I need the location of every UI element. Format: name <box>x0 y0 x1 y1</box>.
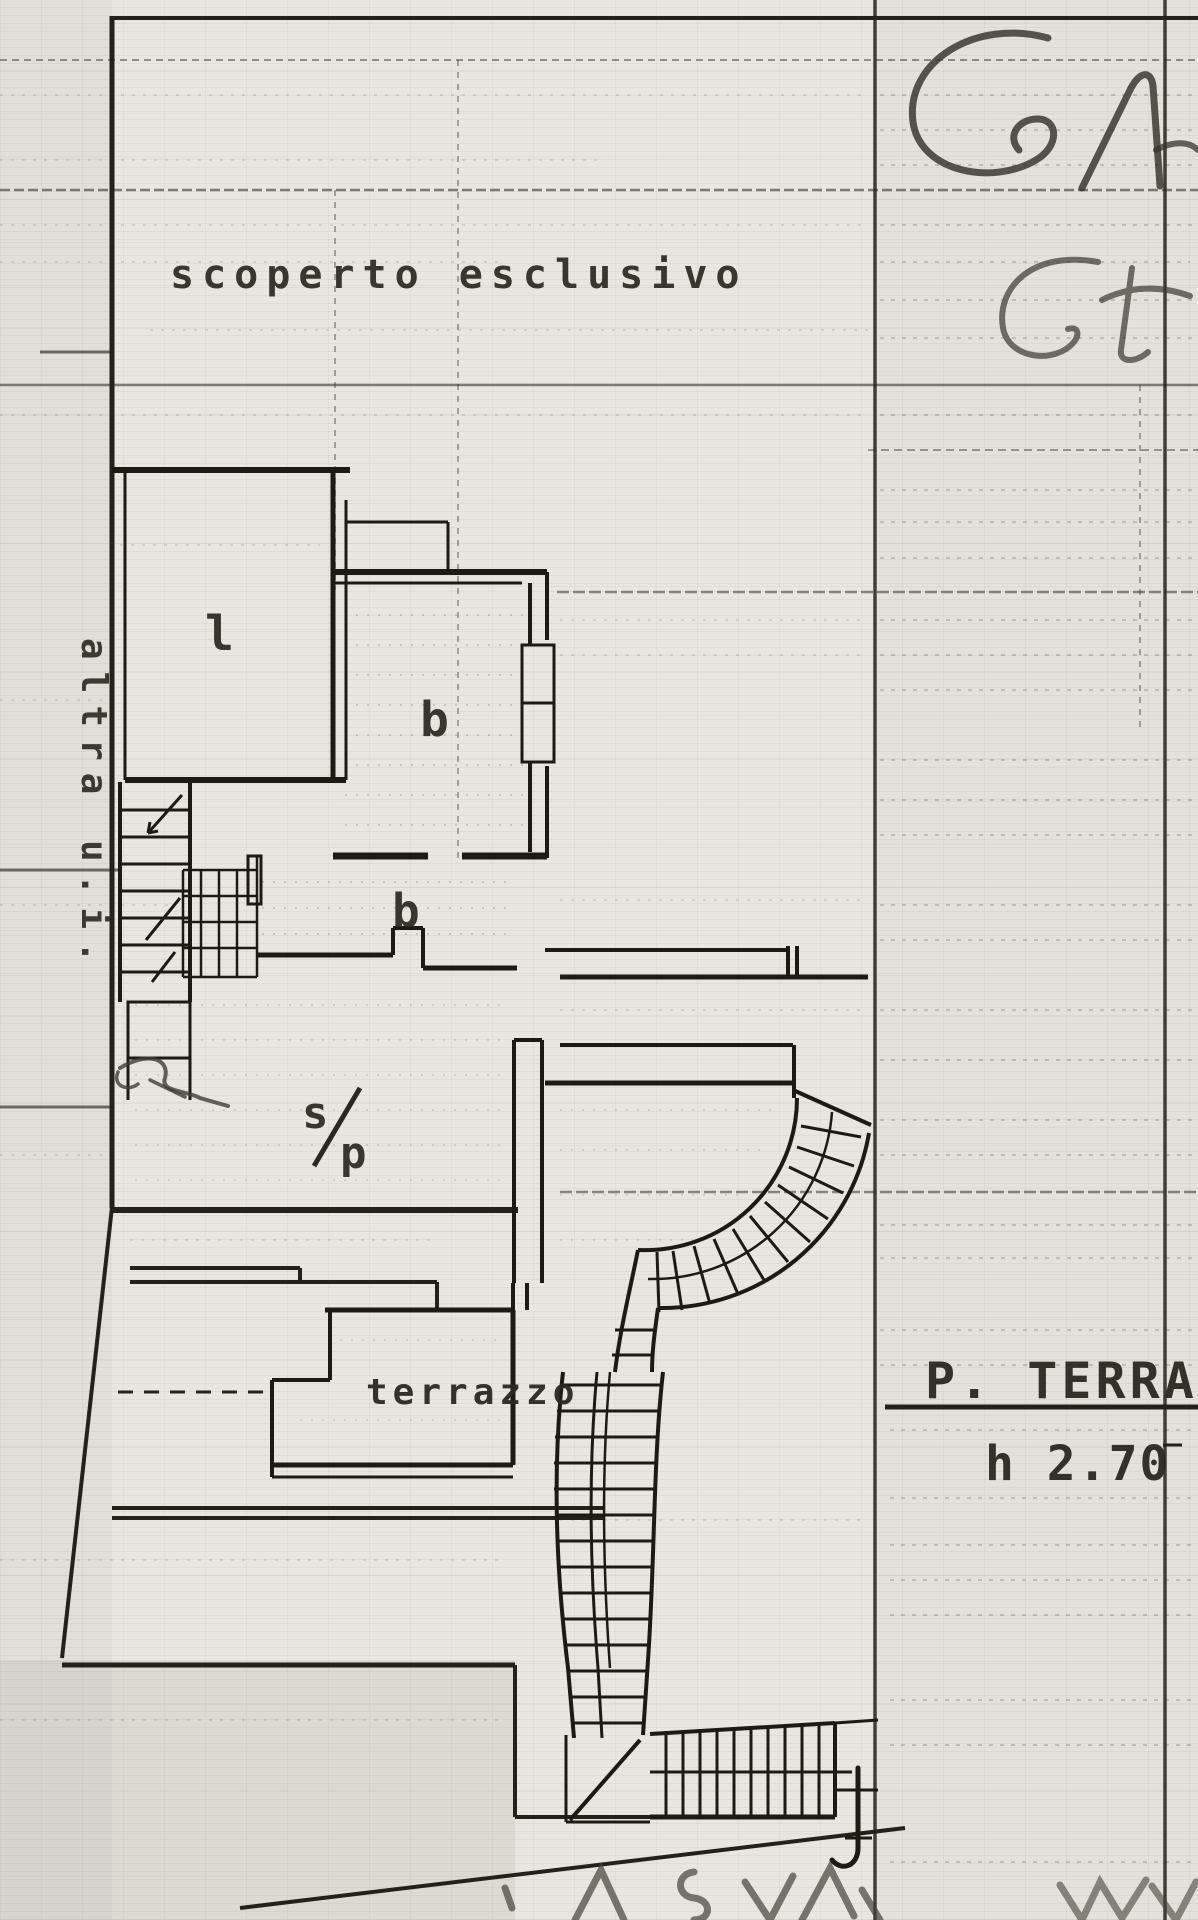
label-floor-title: P. TERRA <box>925 1352 1198 1410</box>
label-room-b-upper: b <box>420 692 449 748</box>
floor-plan-scan: scoperto esclusivo altra u.i. l b b s p … <box>0 0 1198 1920</box>
curved-stair <box>612 1090 871 1372</box>
label-living-p: p <box>340 1128 367 1179</box>
label-room-l: l <box>205 606 234 662</box>
pencil-scribble <box>117 1059 228 1106</box>
plan-drawing: scoperto esclusivo altra u.i. l b b s p … <box>0 0 1198 1920</box>
label-scoperto-esclusivo: scoperto esclusivo <box>170 252 747 298</box>
label-terrazzo: terrazzo <box>366 1372 579 1413</box>
label-floor-height: h 2.70 <box>985 1436 1170 1492</box>
descending-stair <box>554 1372 878 1866</box>
label-room-b-lower: b <box>392 884 420 938</box>
label-altra-ui: altra u.i. <box>73 638 114 975</box>
label-living-s: s <box>302 1088 329 1139</box>
